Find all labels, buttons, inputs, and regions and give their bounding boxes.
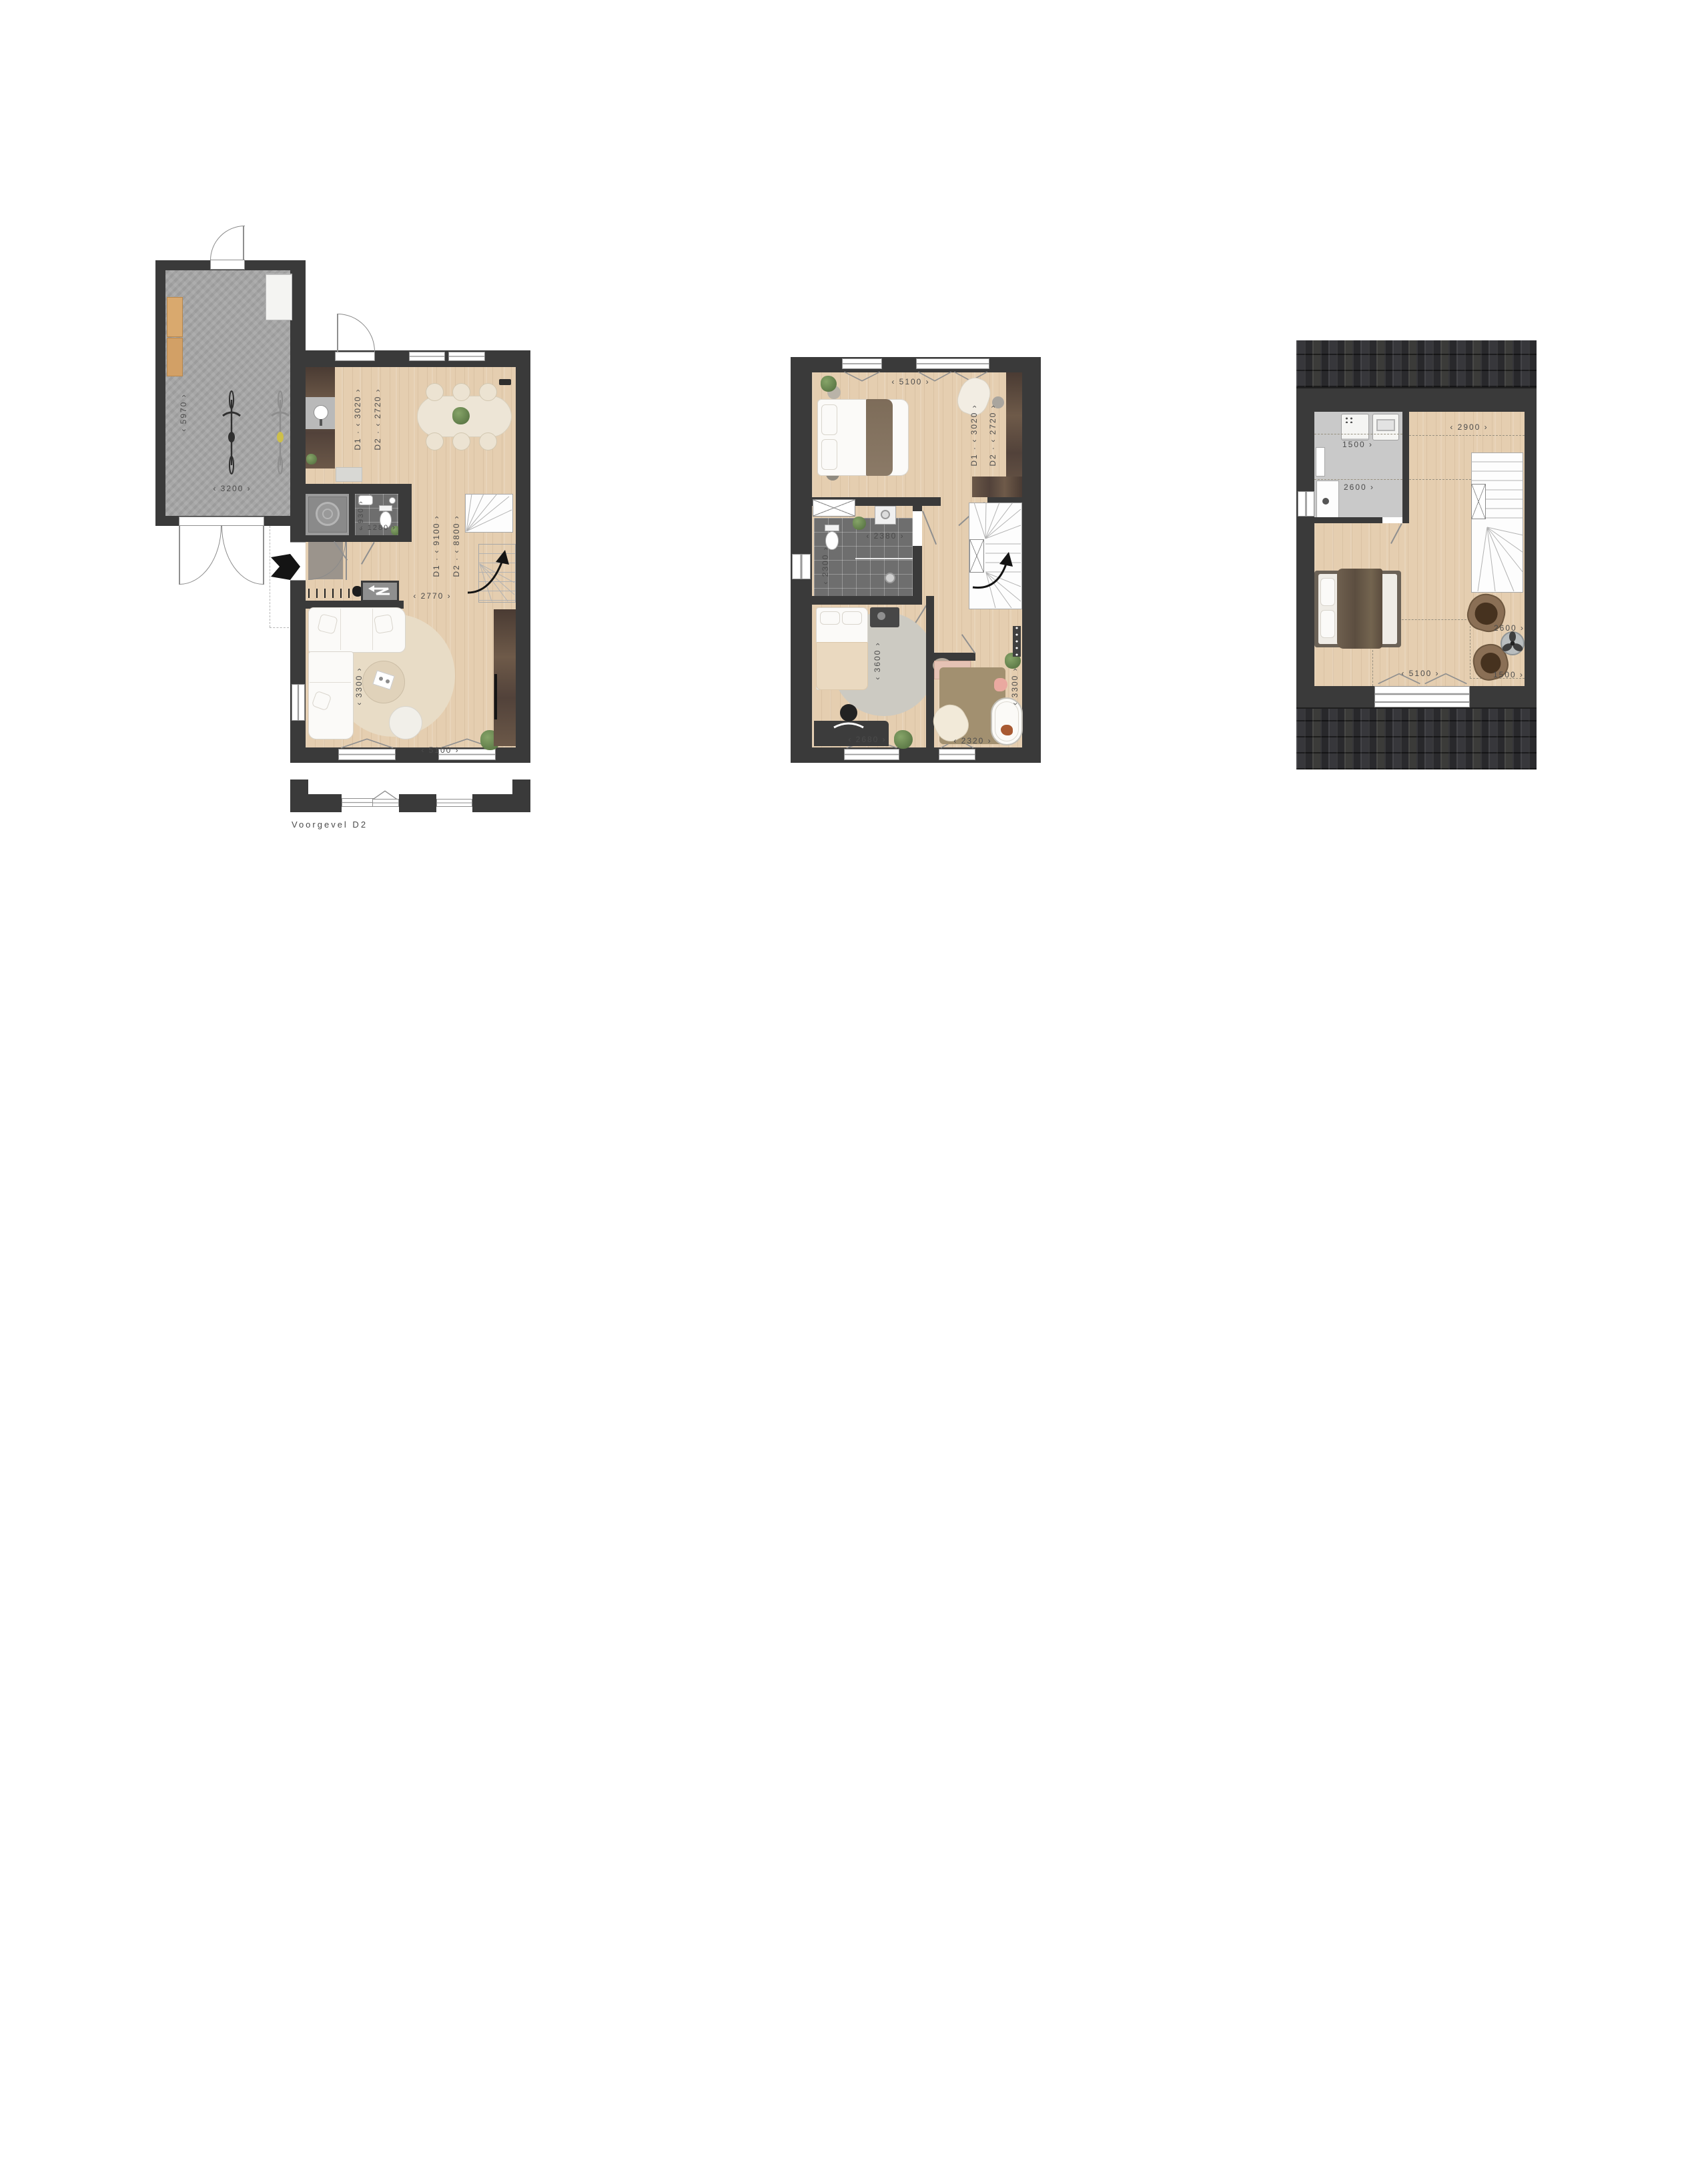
dim-bed3-width: ‹ 2320 › [953,736,991,745]
coat-rack [308,589,352,598]
kitchen-door-arc [338,314,375,352]
bed-pillow [842,611,862,625]
bedroom3-window [939,749,975,760]
bed-pillow [1320,610,1335,638]
shower-drain [881,510,890,519]
dining-chair [452,432,470,450]
dim-tech-width: 1500 › [1342,440,1373,449]
bathroom-window [792,554,811,579]
dining-chair [426,383,444,401]
pouf [389,706,422,739]
plant [452,407,470,424]
bedroom2-window [844,749,899,760]
kitchen-door-opening [335,352,375,361]
bed-blanket [1337,569,1382,649]
headroom-line [1409,479,1471,480]
bed-pillow [820,611,840,625]
window-sash-icon [843,371,881,382]
dim-garage-depth: ‹ 5970 › [179,393,188,431]
shower-partition [855,558,913,559]
kitchen-window [409,352,445,361]
wall-object [499,379,511,385]
tv-screen [494,674,497,719]
garage-shelf [266,274,292,320]
kitchen-base-block [336,467,362,482]
nightstand-item [877,612,885,620]
sofa-cushion [340,609,341,650]
interior-wall [791,596,922,605]
plan-caption: Voorgevel D2 [292,820,368,830]
bedroom-window [842,358,882,369]
interior-wall [290,484,412,494]
garage-back-door-leaf [243,226,244,260]
floorplan-sheet: ‹ 5970 › ‹ 3200 › [0,0,1708,1090]
kitchen-window [448,352,485,361]
window-sash-icon [1424,673,1468,685]
dining-chair [452,383,470,401]
dormer-window [1374,686,1470,702]
bicycle-icon [270,390,290,477]
sofa-cushion [310,682,351,683]
dim-kitchen-d1: D1 · ‹ 3020 › [353,388,362,450]
bed-pillow [821,404,837,435]
wardrobe [972,477,1022,497]
garage-door-opening [179,517,264,526]
facade-window [342,798,374,807]
plant [894,730,913,749]
dim-master-width: ‹ 5100 › [891,377,929,386]
interior-wall [926,653,975,661]
bedroom-window [916,358,989,369]
front-door-leaf [346,542,347,580]
meter-cabinet-icon [368,585,391,598]
toy [1001,725,1013,735]
tray-item [379,677,383,681]
facade-block [399,794,436,812]
dim-living-depth: ‹ 3300 › [354,667,364,705]
entry-arrow-icon [271,554,300,581]
garage-cabinet [167,297,183,337]
facade-window [436,799,472,807]
headroom-line [1470,619,1470,678]
living-window-left [292,684,305,721]
washer-drum-icon [322,509,333,519]
garage-cabinet [167,338,183,376]
interior-wall [398,494,412,535]
stairs-direction-arrow [464,546,517,602]
bed-pillow [821,439,837,470]
dim-master-d1: D1 · ‹ 3020 › [969,404,979,466]
window-sash-icon [1377,673,1421,685]
facade-block [512,780,530,812]
sofa-cushion [372,609,373,650]
washer-knobs [1344,416,1354,423]
linen-cabinet [813,499,855,517]
bathroom-door-opening [913,511,922,546]
stairs-treads [1471,452,1523,593]
headroom-line [1314,479,1402,480]
stairs-winders [465,494,513,533]
tray-item [386,679,390,683]
dim-bath-depth: ‹ 2300 › [821,546,830,584]
dim-house-d1: D1 · ‹ 9100 › [432,515,441,577]
tall-cabinet [1316,447,1325,477]
bathroom-sink-bowl [389,497,396,504]
roof-surface-top [1296,340,1537,388]
headroom-line [1409,435,1525,436]
garage-back-door-arc [210,226,245,260]
boiler-dial [1322,498,1329,505]
interior-wall [290,535,412,542]
window-sill [1374,702,1470,707]
dim-landing-width: ‹ 2900 › [1450,422,1488,432]
toilet-tank [379,505,392,511]
kitchen-sink [314,405,328,420]
dim-hall-width: ‹ 2770 › [413,591,451,601]
dim-bath-width: ‹ 2380 › [866,531,904,541]
desk-chair [830,701,867,731]
dim-tech-depth: 2600 › [1344,483,1374,492]
headroom-line [1314,434,1402,434]
dim-master-d2: D2 · ‹ 2720 › [988,404,997,466]
dim-sit-width: 1500 › [1493,670,1524,679]
plant [821,376,837,392]
dining-chair [426,432,444,450]
plant [853,517,866,530]
plan-first-floor: ‹ 5100 › D1 · ‹ 3020 › D2 · ‹ 2720 › ‹ 2… [0,1090,1708,2181]
dim-sit-depth: 2600 › [1494,623,1525,633]
facade-block [290,794,342,812]
dim-garage-width: ‹ 3200 › [213,484,251,493]
dining-chair [479,432,497,450]
interior-wall [349,494,355,535]
interior-wall [1402,412,1409,523]
dim-kitchen-d2: D2 · ‹ 2720 › [373,388,382,450]
dining-chair [479,383,497,401]
garage-back-door-opening [210,260,245,270]
bed-blanket [816,642,868,690]
wall-radiator [1013,626,1021,657]
living-window [338,749,396,760]
fan-icon [1500,631,1525,656]
stair-railing [1471,484,1486,519]
bed-runner [866,399,893,476]
facade-window [372,799,399,807]
dim-house-d2: D2 · ‹ 8800 › [452,515,461,577]
shower-head-icon [885,573,895,583]
dim-bed2-width: ‹ 2680 › [848,735,886,744]
dim-living-width: ‹ 5100 › [421,745,459,755]
tech-door-opening [1382,517,1402,523]
bassinet-inner [995,701,1019,741]
garage-door-arc [222,526,264,585]
dim-bed3-depth: ‹ 3300 › [1010,667,1019,705]
toilet-tank [825,525,839,531]
bed-pillow [1320,578,1335,606]
dryer-door [1376,419,1395,431]
stairs-direction-arrow [969,503,1022,609]
plant [306,454,317,464]
dashed-boundary [270,526,270,627]
side-window [1298,491,1314,517]
sofa-pillow [374,614,394,634]
window-sash-icon [340,738,394,749]
dim-bed2-depth: ‹ 3600 › [873,641,882,679]
garage-door-arc [179,526,222,585]
kitchen-faucet [320,419,322,426]
roof-surface-bottom [1296,707,1537,769]
dim-bath-length: ‹ 1280 › [360,524,396,532]
bicycle-icon [222,390,242,477]
